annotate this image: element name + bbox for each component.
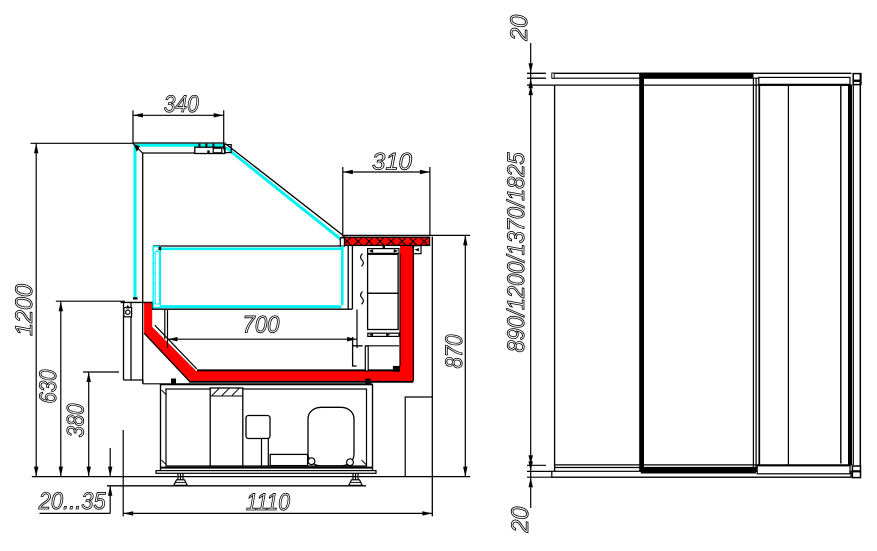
svg-text:700: 700 <box>243 312 281 339</box>
svg-text:310: 310 <box>372 149 413 176</box>
svg-text:630: 630 <box>35 369 62 404</box>
svg-text:20: 20 <box>507 506 534 534</box>
svg-text:870: 870 <box>441 334 468 369</box>
svg-text:20...35: 20...35 <box>38 488 106 515</box>
svg-text:340: 340 <box>164 91 200 118</box>
svg-text:1110: 1110 <box>246 489 291 516</box>
svg-text:380: 380 <box>63 403 90 438</box>
svg-text:1200: 1200 <box>11 283 38 336</box>
svg-text:890/1200/1370/1825: 890/1200/1370/1825 <box>503 152 530 353</box>
svg-text:20: 20 <box>506 14 533 42</box>
